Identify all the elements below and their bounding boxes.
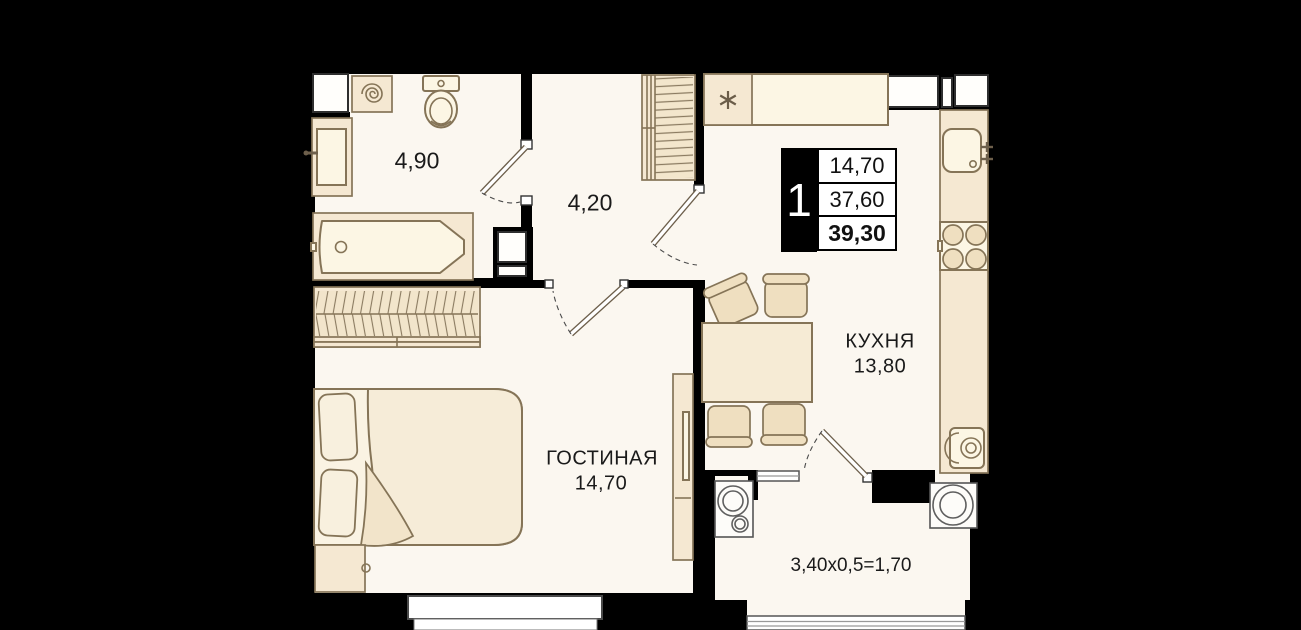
rooms-count: 1 bbox=[781, 148, 817, 252]
floor-plan-drawing bbox=[0, 0, 1301, 630]
washing-machine bbox=[352, 76, 392, 112]
balcony-dimensions-label: 3,40x0,5=1,70 bbox=[791, 555, 912, 577]
hallway-wardrobe bbox=[642, 75, 695, 180]
stove bbox=[938, 222, 988, 270]
chair bbox=[763, 274, 809, 317]
toilet bbox=[423, 76, 459, 128]
shaft-kitchen-1 bbox=[888, 76, 938, 107]
balcony-window-sill bbox=[757, 471, 799, 481]
nightstand bbox=[315, 545, 370, 592]
kitchen-area-label: 13,80 bbox=[854, 356, 907, 379]
living-wardrobe bbox=[314, 287, 480, 347]
shaft-kitchen-3 bbox=[955, 75, 988, 106]
chair bbox=[761, 404, 807, 445]
total-area-value: 39,30 bbox=[817, 215, 897, 251]
living-area-label: 14,70 bbox=[575, 473, 628, 496]
pillow bbox=[318, 469, 357, 537]
dining-table bbox=[702, 323, 812, 402]
living-name-label: ГОСТИНАЯ bbox=[546, 448, 658, 471]
bathroom-area-label: 4,90 bbox=[395, 148, 440, 175]
bathtub bbox=[311, 213, 473, 280]
pillow bbox=[318, 393, 357, 461]
balcony-boiler bbox=[930, 483, 977, 528]
shaft-hall-lower bbox=[498, 266, 526, 276]
kitchen-counter-right bbox=[938, 110, 993, 473]
shaft-kitchen-2 bbox=[942, 78, 952, 107]
tv-cabinet bbox=[673, 374, 693, 560]
hallway-area-label: 4,20 bbox=[568, 190, 613, 217]
shaft-hall-upper bbox=[498, 232, 526, 262]
tap-icon bbox=[304, 151, 309, 156]
built-in-oven bbox=[945, 428, 984, 468]
balcony-washer bbox=[715, 481, 753, 537]
living-area-value: 14,70 bbox=[817, 148, 897, 184]
apartment-area-value: 37,60 bbox=[817, 182, 897, 218]
chair bbox=[706, 406, 752, 447]
unit-info-badge: 1 14,70 37,60 39,30 bbox=[781, 148, 897, 252]
floor-plan: 4,90 4,20 КУХНЯ 13,80 ГОСТИНАЯ 14,70 3,4… bbox=[0, 0, 1301, 630]
bed bbox=[314, 389, 522, 546]
kitchen-name-label: КУХНЯ bbox=[845, 331, 914, 354]
kitchen-counter-top bbox=[704, 74, 888, 125]
balcony-glazing bbox=[747, 616, 965, 630]
living-room-window bbox=[408, 596, 602, 630]
shaft-top-left bbox=[313, 74, 348, 112]
